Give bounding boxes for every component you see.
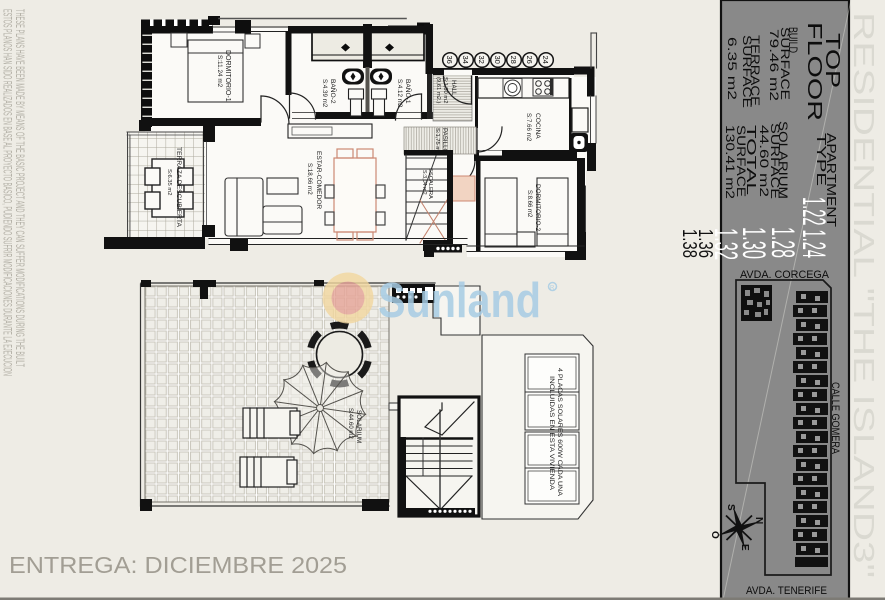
svg-text:PASILLO: PASILLO [441,128,448,154]
svg-text:24: 24 [541,56,550,64]
svg-text:SURFACE: SURFACE [740,35,754,108]
svg-text:79.46 m2: 79.46 m2 [767,29,781,101]
svg-text:R: R [550,286,555,292]
svg-text:(9,61 m2.): (9,61 m2.) [435,77,441,103]
svg-text:RESIDENTIAL "THE ISLAND3": RESIDENTIAL "THE ISLAND3" [847,12,879,578]
svg-text:4 PLACAS SOLARES 600W CADA UNA: 4 PLACAS SOLARES 600W CADA UNA [556,368,563,497]
svg-text:32: 32 [477,56,486,64]
svg-text:6.35 m2: 6.35 m2 [725,37,739,100]
svg-text:FLOOR: FLOOR [803,22,825,121]
svg-text:ESTOS PLANOS HAN SIDO REALIZAD: ESTOS PLANOS HAN SIDO REALIZADOS EN BASE… [1,9,15,376]
svg-text:ENTREGA: DICIEMBRE 2025: ENTREGA: DICIEMBRE 2025 [9,552,347,578]
svg-text:26: 26 [525,56,534,64]
svg-text:E: E [739,544,750,551]
svg-text:36: 36 [445,56,454,64]
svg-text:TERRAZA DESCUBIERTA: TERRAZA DESCUBIERTA [175,147,182,228]
svg-text:S:8.66 m2: S:8.66 m2 [526,190,532,218]
svg-text:DORMITORIO-1: DORMITORIO-1 [224,50,231,102]
svg-text:N: N [753,517,764,524]
svg-text:INCLUIDAS EN ESTA VIVIENDA: INCLUIDAS EN ESTA VIVIENDA [548,376,555,491]
svg-text:S: S [725,504,736,511]
svg-text:Sunland: Sunland [378,274,541,328]
svg-text:S:7.66 m2: S:7.66 m2 [525,113,532,142]
svg-text:1.38: 1.38 [678,229,700,258]
svg-text:HALL: HALL [450,80,457,96]
svg-text:S:18,66 m2: S:18,66 m2 [306,163,313,195]
svg-text:S:11.24 m2: S:11.24 m2 [216,55,223,88]
svg-text:30: 30 [493,56,502,64]
svg-text:130.41 m2: 130.41 m2 [723,125,737,199]
svg-text:28: 28 [509,56,518,64]
svg-text:CALLE GOMERA: CALLE GOMERA [829,382,841,455]
svg-text:S:44.60 m2: S:44.60 m2 [347,408,353,439]
svg-text:S:6.35 m2: S:6.35 m2 [166,169,172,195]
svg-text:SOLARIUM: SOLARIUM [355,410,362,443]
svg-text:DORMITORIO-2: DORMITORIO-2 [534,184,541,232]
svg-text:ESTAR-COMEDOR: ESTAR-COMEDOR [315,151,322,209]
svg-text:BAÑO-2: BAÑO-2 [329,79,338,104]
svg-text:S:3,04 m2: S:3,04 m2 [421,170,427,195]
svg-text:34: 34 [461,56,470,64]
svg-text:COCINA: COCINA [534,113,541,139]
svg-text:O: O [709,531,720,539]
svg-text:S:4.39 m2: S:4.39 m2 [321,79,328,108]
svg-text:TYPE: TYPE [814,133,829,186]
svg-text:AVDA. TENERIFE: AVDA. TENERIFE [746,585,827,597]
